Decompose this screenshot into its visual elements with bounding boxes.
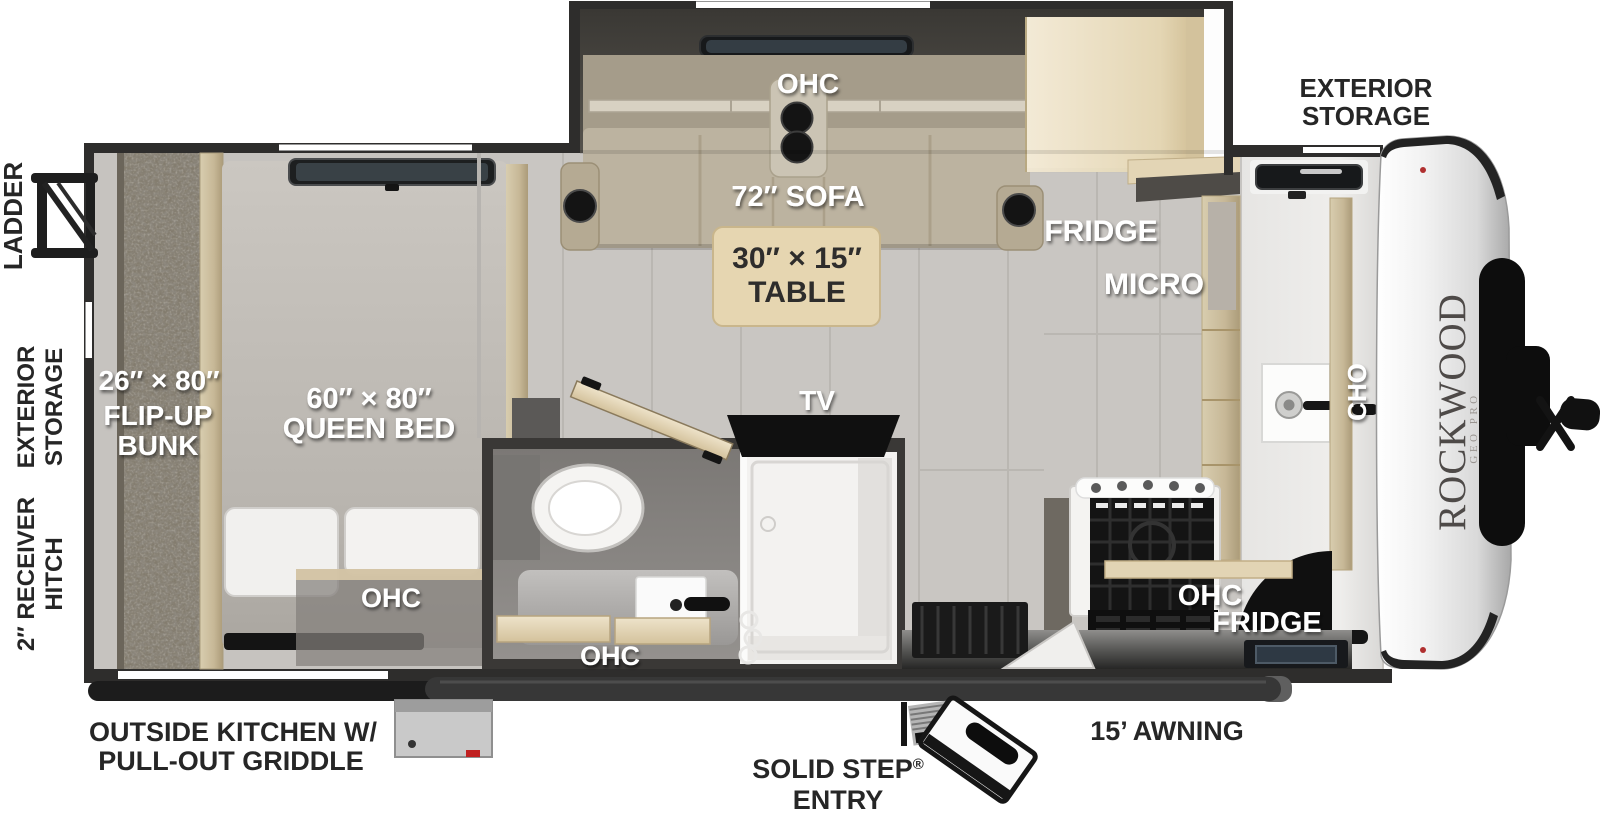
svg-text:TABLE: TABLE — [748, 276, 846, 309]
svg-text:CHO: CHO — [1342, 363, 1372, 421]
svg-text:30″ × 15″: 30″ × 15″ — [732, 242, 862, 275]
svg-text:OHC: OHC — [777, 68, 839, 99]
svg-text:STORAGE: STORAGE — [1302, 101, 1430, 131]
svg-text:EXTERIOR: EXTERIOR — [1300, 73, 1433, 103]
svg-text:MICRO: MICRO — [1104, 268, 1204, 301]
svg-text:OUTSIDE KITCHEN W/: OUTSIDE KITCHEN W/ — [89, 717, 377, 747]
svg-text:OHC: OHC — [361, 583, 421, 613]
svg-text:QUEEN BED: QUEEN BED — [283, 413, 455, 445]
svg-text:SOLID STEP®: SOLID STEP® — [752, 754, 924, 784]
svg-text:FLIP-UP: FLIP-UP — [104, 400, 213, 431]
svg-text:72″ SOFA: 72″ SOFA — [731, 181, 864, 213]
svg-text:2″ RECEIVER: 2″ RECEIVER — [13, 497, 40, 651]
svg-text:STORAGE: STORAGE — [41, 348, 68, 466]
svg-text:GEO PRO: GEO PRO — [1468, 392, 1480, 463]
svg-text:ENTRY: ENTRY — [793, 785, 884, 813]
svg-text:HITCH: HITCH — [41, 537, 68, 610]
svg-text:LADDER: LADDER — [0, 162, 28, 271]
svg-text:15’ AWNING: 15’ AWNING — [1090, 716, 1244, 746]
svg-text:BUNK: BUNK — [118, 430, 199, 461]
svg-text:TV: TV — [799, 385, 835, 416]
svg-text:FRIDGE: FRIDGE — [1044, 215, 1157, 248]
svg-text:EXTERIOR: EXTERIOR — [13, 346, 40, 469]
svg-text:OHC: OHC — [580, 641, 640, 671]
svg-text:PULL-OUT GRIDDLE: PULL-OUT GRIDDLE — [98, 746, 363, 776]
svg-text:FRIDGE: FRIDGE — [1212, 607, 1322, 639]
svg-text:26″ × 80″: 26″ × 80″ — [98, 365, 219, 396]
svg-text:60″ × 80″: 60″ × 80″ — [306, 383, 431, 415]
